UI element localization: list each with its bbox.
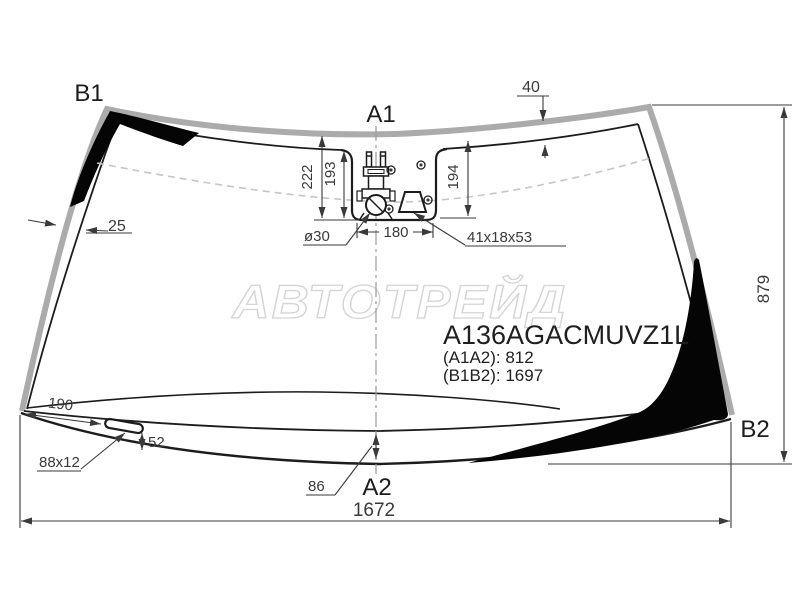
dim-52-text: 52 <box>148 434 165 451</box>
dim-86-text: 86 <box>308 478 325 495</box>
part-info: A136AGACMUVZ1L (A1A2): 812 (B1B2): 1697 <box>443 320 689 385</box>
diagram-canvas: АВТОТРЕЙД <box>0 0 800 600</box>
label-a1: A1 <box>366 101 395 128</box>
bolt-icon <box>417 161 425 169</box>
moulding-edge <box>22 107 732 415</box>
windshield-diagram: АВТОТРЕЙД <box>0 0 800 600</box>
ceramic-band-top-left <box>70 111 199 207</box>
dim-879-text: 879 <box>754 275 773 303</box>
dim-sensor-width: 180 <box>357 223 433 241</box>
dim-190-text: 190 <box>47 395 74 415</box>
sensor-cutout <box>341 149 447 220</box>
dim-193-text: 193 <box>322 161 339 186</box>
label-b2: B2 <box>740 416 769 443</box>
dim-194-text: 194 <box>445 164 462 189</box>
label-b1: B1 <box>74 80 103 107</box>
dim-edge-top-text: 40 <box>522 79 540 96</box>
dim-222-text: 222 <box>299 164 316 189</box>
dim-sensor-depth-right: 194 <box>440 141 476 218</box>
mounting-slot <box>105 418 144 433</box>
dim-1672-text: 1672 <box>353 500 395 521</box>
dim-180-text: 180 <box>383 224 408 241</box>
part-a1a2: (A1A2): 812 <box>443 348 534 367</box>
dim-slot-height: 52 <box>142 433 165 451</box>
cowl-reference-line <box>27 392 560 409</box>
dim-mirror-pad: 41x18x53 <box>414 213 566 246</box>
label-a2: A2 <box>362 474 391 501</box>
part-b1b2: (B1B2): 1697 <box>443 366 543 385</box>
dim-edge-left-text: 25 <box>108 218 126 235</box>
dim-88x12-text: 88x12 <box>39 454 80 471</box>
part-code: A136AGACMUVZ1L <box>443 320 689 350</box>
dim-o30-text: ø30 <box>304 228 330 245</box>
dim-slot-offset: 190 <box>25 395 101 424</box>
dim-41x18x53-text: 41x18x53 <box>467 229 532 246</box>
dim-edge-top: 40 <box>517 79 549 158</box>
dim-slot-size: 88x12 <box>37 433 125 471</box>
